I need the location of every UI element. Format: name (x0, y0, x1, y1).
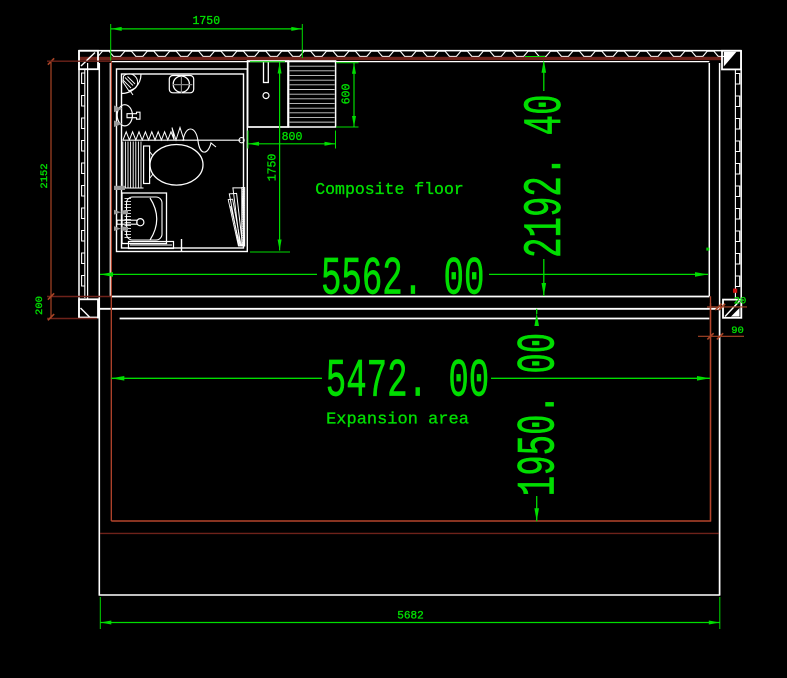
svg-text:1950. 00: 1950. 00 (508, 333, 570, 496)
svg-text:1750: 1750 (267, 154, 280, 182)
svg-text:5682: 5682 (397, 610, 423, 622)
svg-text:90: 90 (731, 325, 744, 337)
svg-text:5472. 00: 5472. 00 (326, 350, 489, 412)
svg-text:Expansion area: Expansion area (326, 411, 469, 430)
svg-text:20: 20 (734, 296, 747, 308)
svg-text:1750: 1750 (192, 15, 220, 28)
svg-text:Composite floor: Composite floor (315, 180, 464, 199)
svg-text:5562. 00: 5562. 00 (321, 248, 484, 310)
svg-text:800: 800 (282, 131, 303, 144)
svg-text:200: 200 (34, 296, 46, 315)
svg-text:2192. 40: 2192. 40 (515, 94, 577, 257)
svg-text:600: 600 (340, 84, 353, 105)
svg-text:2152: 2152 (39, 163, 51, 188)
